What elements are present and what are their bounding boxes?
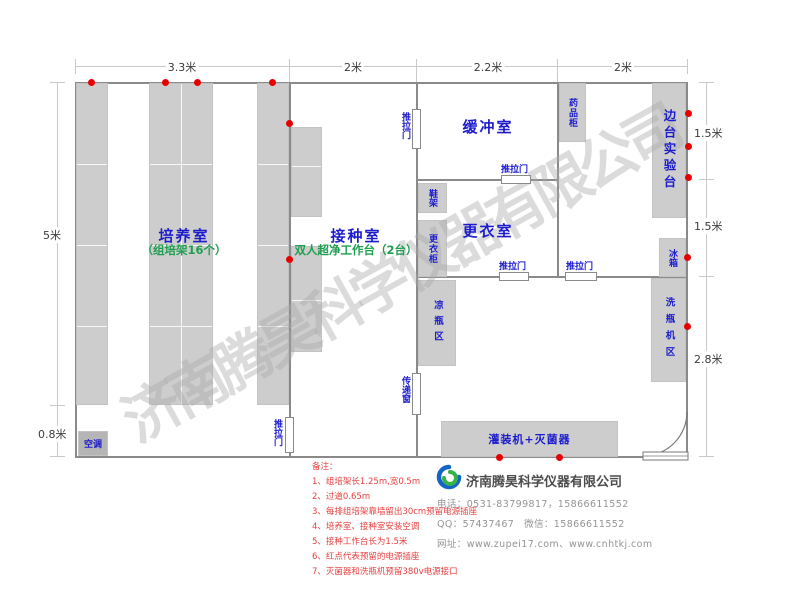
power-socket-dot: [88, 79, 95, 86]
fridge: 冰箱: [659, 238, 686, 277]
culture-shelf-column: [257, 83, 289, 405]
sliding-door: [565, 272, 597, 281]
medicine-cabinet-label: 药品柜: [566, 98, 579, 128]
dim-left-2: 0.8米: [36, 426, 69, 442]
sliding-door-label: 推拉门: [499, 262, 526, 272]
dim-top-3: 2.2米: [472, 59, 505, 75]
power-socket-dot: [286, 120, 293, 127]
wall-buffer-changing: [530, 179, 558, 181]
power-socket-dot: [286, 256, 293, 263]
dim-right-3: 2.8米: [692, 351, 725, 367]
power-socket-dot: [194, 79, 201, 86]
dim-top-2: 2米: [342, 59, 364, 75]
company-name: 济南腾昊科学仪器有限公司: [466, 471, 622, 490]
wall-inoculation-right: [416, 414, 418, 458]
sliding-door-label: 推拉门: [566, 262, 593, 272]
power-socket-dot: [685, 174, 692, 181]
power-socket-dot: [496, 454, 503, 461]
company-block: 济南腾昊科学仪器有限公司 电话：0531-83799817，1586661155…: [436, 464, 462, 494]
pass-through-window-label: 传递窗: [400, 376, 410, 403]
company-logo-icon: [436, 464, 462, 490]
clean-bench: [291, 246, 322, 352]
dim-left-1: 5米: [41, 227, 63, 243]
culture-shelf-column: [76, 83, 108, 405]
room-inoculation-sub: 双人超净工作台（2台）: [286, 242, 426, 258]
room-cultivation-sub: （组培架16个）: [124, 242, 244, 258]
side-lab-bench: 边台实验台: [652, 83, 686, 218]
dim-tick: [75, 59, 76, 74]
dim-tick: [50, 456, 65, 457]
sliding-door-label: 推拉门: [400, 112, 410, 139]
room-buffer-label: 缓冲室: [438, 116, 538, 137]
room-changing-label: 更衣室: [438, 220, 538, 241]
dim-tick: [699, 179, 714, 180]
medicine-cabinet: 药品柜: [559, 83, 586, 142]
company-qq: QQ：57437467 微信：15866611552: [437, 516, 625, 530]
pass-through-window: [412, 373, 421, 415]
dim-tick: [289, 59, 290, 83]
clean-bench: [291, 127, 322, 217]
sliding-door-label: 推拉门: [272, 419, 282, 446]
bottle-washer-area: 洗瓶机区: [651, 278, 686, 382]
shoe-rack-label: 鞋架: [426, 189, 439, 207]
power-socket-dot: [269, 79, 276, 86]
power-socket-dot: [556, 454, 563, 461]
filler-sterilizer-label: 灌装机+灭菌器: [488, 431, 570, 447]
side-lab-bench-label: 边台实验台: [660, 109, 679, 192]
power-socket-dot: [162, 79, 169, 86]
dim-tick: [699, 82, 714, 83]
wall-inoculation-right: [416, 82, 418, 110]
dim-tick: [699, 276, 714, 277]
floor-plan: 济南腾昊科学仪器有限公司 3.3米 2米 2.2米 2米 5米 0.8米 1.5…: [0, 0, 800, 600]
swing-door-icon: [630, 400, 700, 470]
bottle-cooling-area: 凉瓶区: [418, 280, 456, 366]
air-conditioner: 空调: [78, 431, 108, 456]
sliding-door: [412, 109, 421, 149]
note-item: 7、灭菌器和洗瓶机预留380v电源接口: [312, 565, 477, 580]
note-item: 6、红点代表预留的电源插座: [312, 550, 477, 565]
dim-top-1: 3.3米: [166, 59, 199, 75]
wall-changing-bottom: [528, 276, 567, 278]
sliding-door: [501, 175, 531, 184]
power-socket-dot: [685, 143, 692, 150]
power-socket-dot: [684, 254, 691, 261]
dim-right-1: 1.5米: [692, 125, 725, 141]
dim-right-2: 1.5米: [692, 218, 725, 234]
dim-top-4: 2米: [612, 59, 634, 75]
dim-tick: [50, 82, 65, 83]
sliding-door-label: 推拉门: [501, 165, 528, 175]
dim-tick: [687, 59, 688, 74]
fridge-label: 冰箱: [666, 249, 679, 267]
filler-sterilizer: 灌装机+灭菌器: [441, 421, 618, 457]
power-socket-dot: [685, 110, 692, 117]
company-phone: 电话：0531-83799817，15866611552: [437, 496, 629, 510]
dim-tick: [699, 456, 714, 457]
dim-tick: [50, 405, 65, 406]
dim-tick: [557, 59, 558, 83]
sliding-door: [285, 417, 294, 453]
dim-line-left: [57, 82, 58, 457]
bottle-washer-label: 洗瓶机区: [662, 297, 676, 363]
sliding-door: [499, 272, 529, 281]
dim-tick: [416, 59, 417, 83]
company-website: 网址：www.zupei17.com、www.cnhtkj.com: [437, 536, 652, 550]
shoe-rack: 鞋架: [418, 183, 447, 213]
wall-buffer-changing: [417, 179, 503, 181]
air-conditioner-label: 空调: [84, 437, 102, 450]
bottle-cooling-label: 凉瓶区: [430, 300, 444, 347]
power-socket-dot: [684, 323, 691, 330]
